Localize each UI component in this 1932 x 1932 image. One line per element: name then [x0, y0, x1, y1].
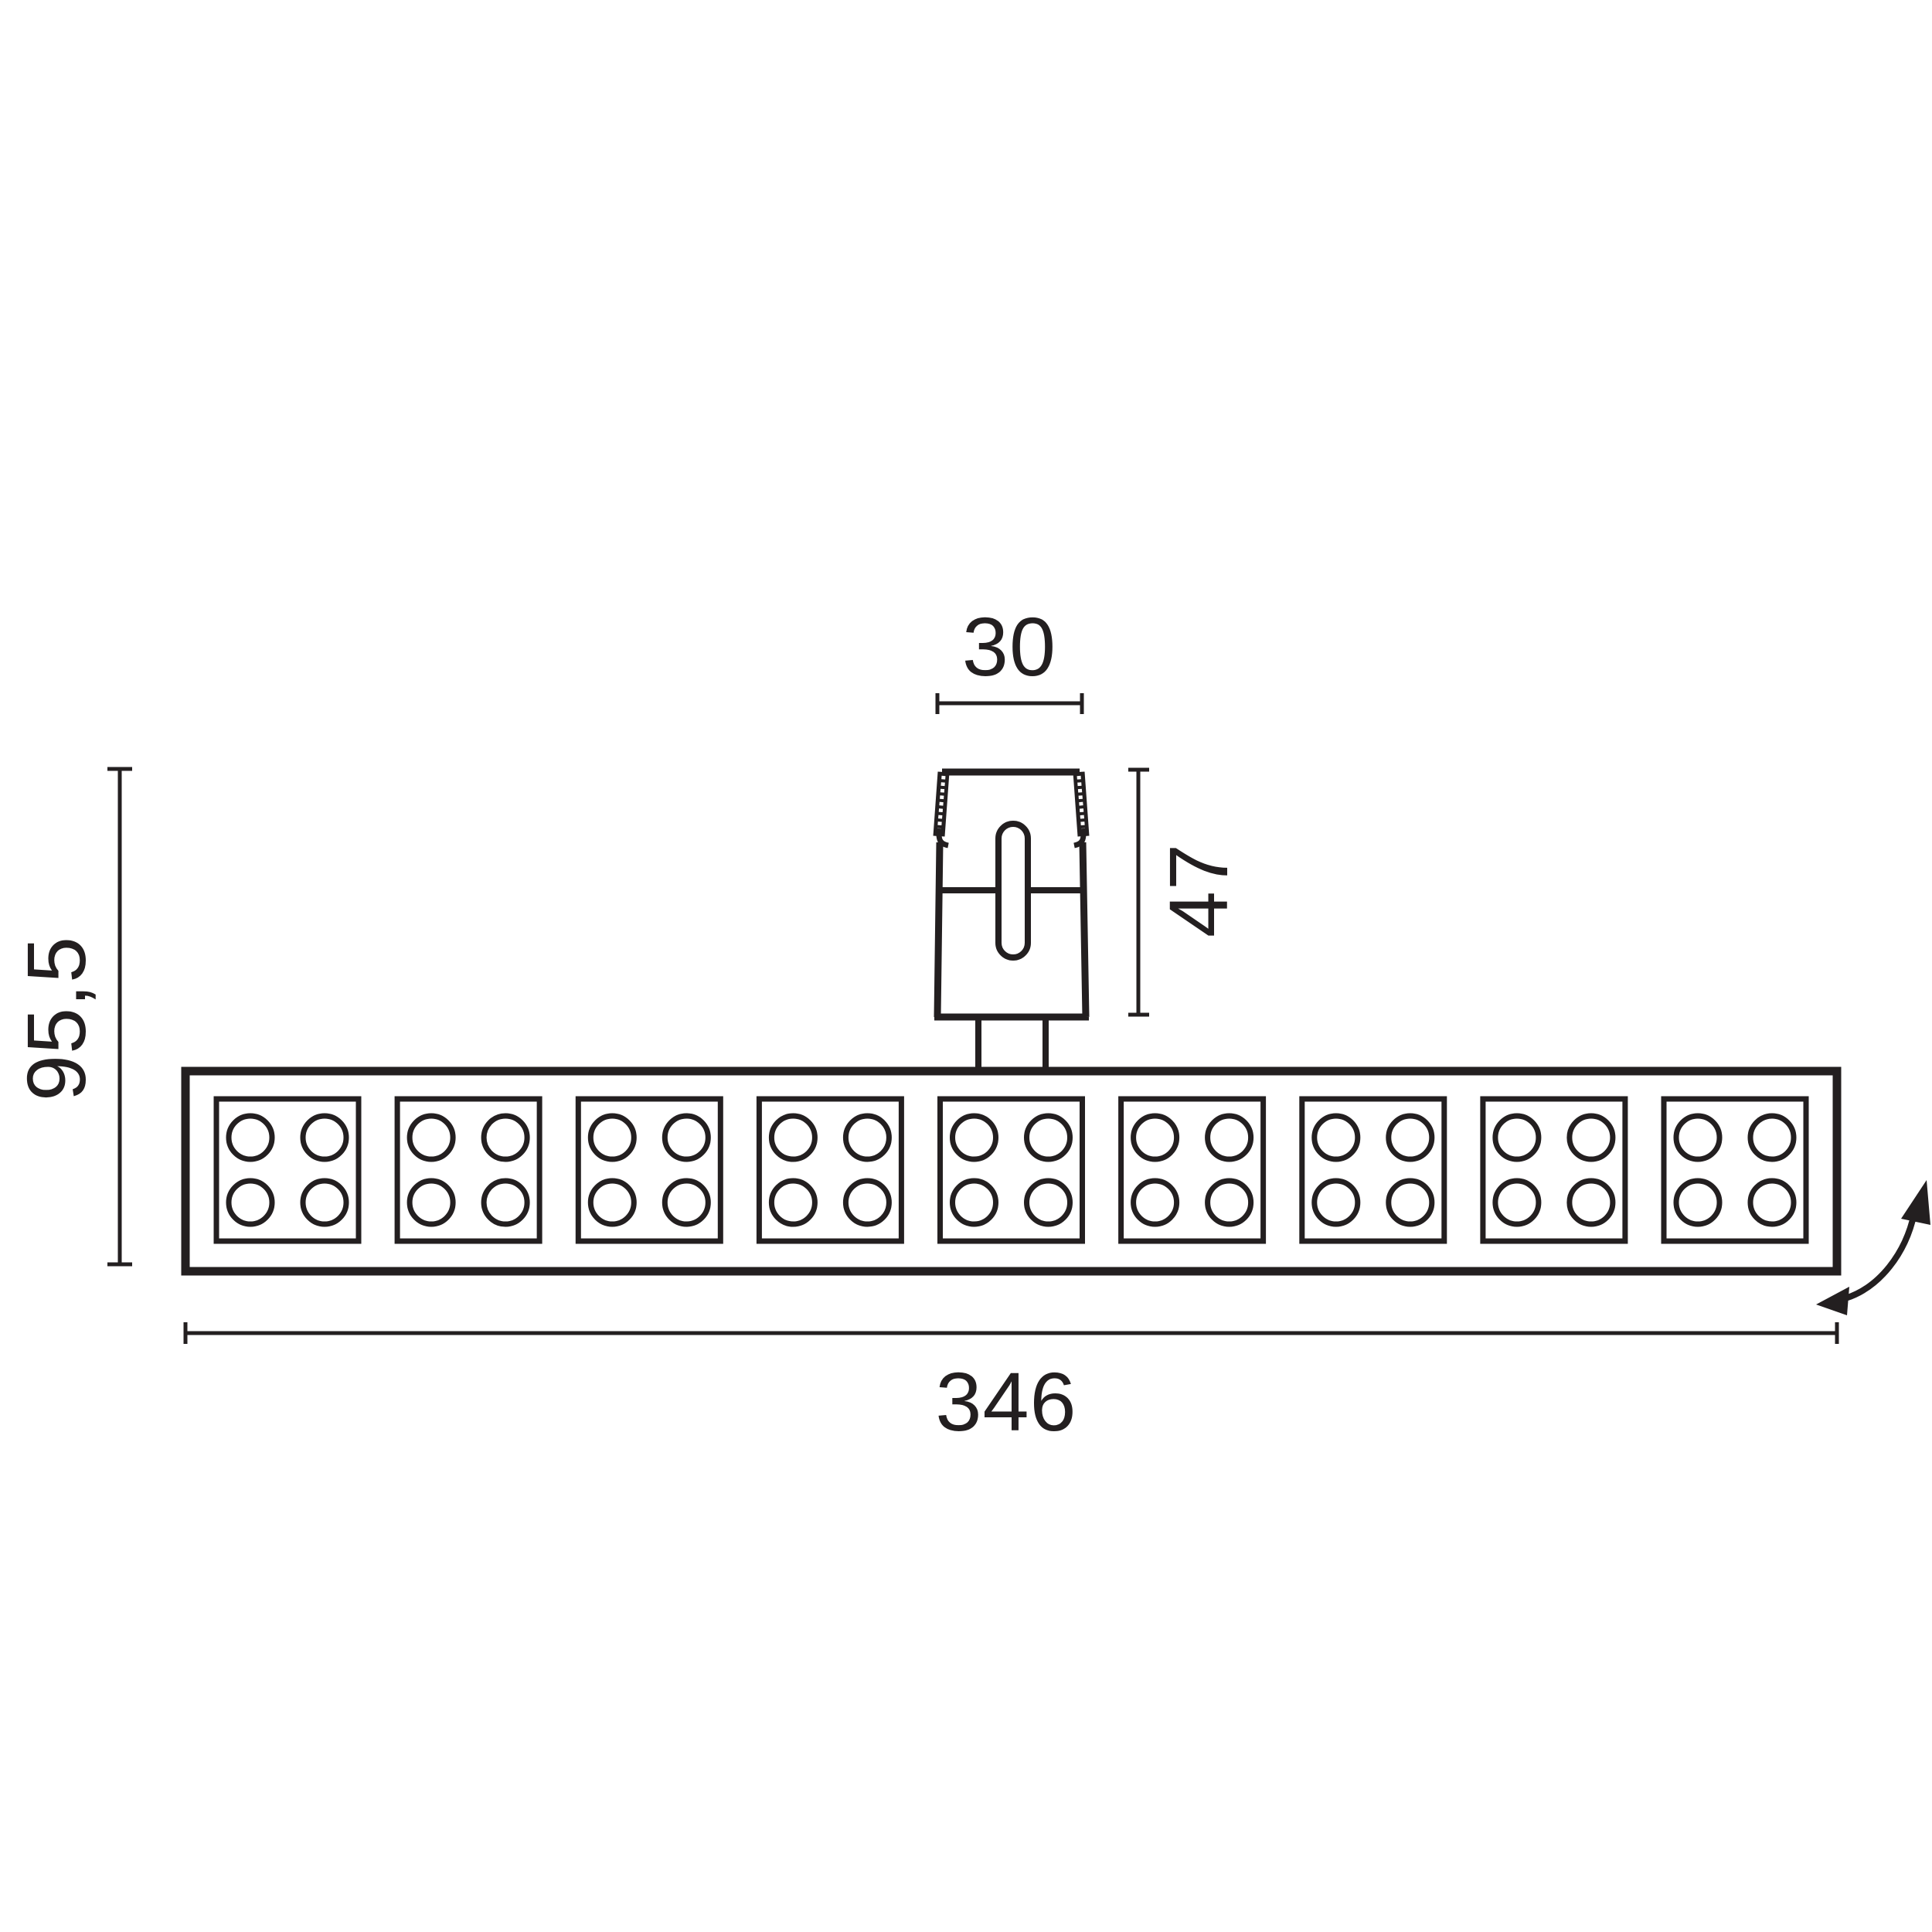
led-circle [953, 1181, 996, 1224]
led-circle [1495, 1181, 1539, 1224]
led-circle [229, 1181, 272, 1224]
dim-text-total-width: 346 [935, 1355, 1077, 1448]
adapter-stem [978, 1017, 1046, 1070]
led-circle [665, 1116, 708, 1159]
technical-drawing-canvas: 30 47 [0, 0, 1932, 1932]
led-circle [1570, 1181, 1613, 1224]
led-circle [1027, 1181, 1070, 1224]
led-circle [1676, 1116, 1719, 1159]
led-circle [484, 1181, 527, 1224]
rotation-arrow-head-up [1901, 1180, 1930, 1225]
led-circle [1570, 1116, 1613, 1159]
led-circle [229, 1116, 272, 1159]
led-circle [1134, 1116, 1177, 1159]
led-circle [845, 1181, 889, 1224]
led-circle [1389, 1181, 1432, 1224]
led-circle [590, 1181, 634, 1224]
led-circle [303, 1181, 346, 1224]
led-circle [590, 1116, 634, 1159]
luminaire-dimension-drawing: 30 47 [0, 0, 1932, 1932]
led-circle [771, 1116, 815, 1159]
dim-text-adapter-width: 30 [962, 600, 1056, 693]
led-circle [953, 1116, 996, 1159]
dimension-adapter-height [1128, 770, 1149, 1015]
dim-text-adapter-height: 47 [1151, 843, 1245, 937]
led-circle [1750, 1116, 1794, 1159]
led-circle [303, 1116, 346, 1159]
adapter-lock-slot [998, 824, 1028, 957]
dimension-total-height [107, 769, 132, 1264]
led-circle [665, 1181, 708, 1224]
led-circle [1676, 1181, 1719, 1224]
led-circle [1315, 1116, 1358, 1159]
dimension-adapter-width [937, 693, 1082, 714]
led-circle [1495, 1116, 1539, 1159]
led-circle [484, 1116, 527, 1159]
led-circle [1750, 1181, 1794, 1224]
rotation-arrow-head-left [1816, 1287, 1849, 1315]
led-circle [1389, 1116, 1432, 1159]
led-module-group [216, 1099, 1806, 1241]
rotation-arrow-arc [1845, 1213, 1914, 1298]
led-circle [1208, 1116, 1251, 1159]
led-circle [771, 1181, 815, 1224]
led-circle [1315, 1181, 1358, 1224]
track-adapter [934, 769, 1089, 1070]
led-circle [410, 1116, 453, 1159]
dim-text-total-height: 95,5 [9, 936, 103, 1101]
led-circle [1027, 1116, 1070, 1159]
led-circle [1134, 1181, 1177, 1224]
led-circle [1208, 1181, 1251, 1224]
led-circle [845, 1116, 889, 1159]
dimension-total-width [185, 1322, 1837, 1344]
led-circle [410, 1181, 453, 1224]
